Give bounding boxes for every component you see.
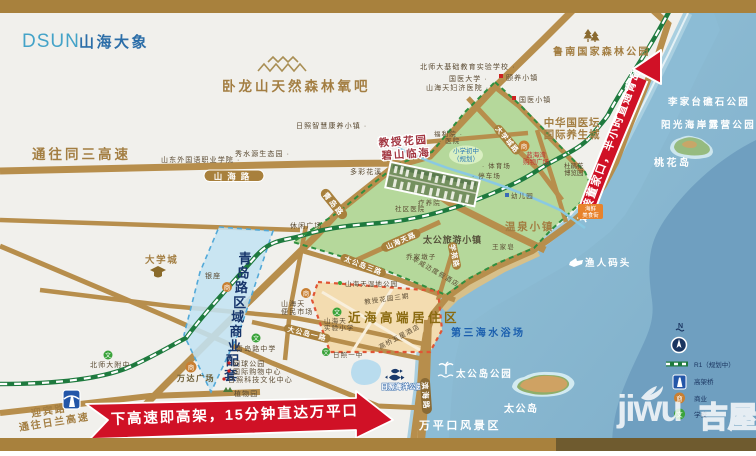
svg-text:第三海水浴场: 第三海水浴场 xyxy=(451,326,525,339)
svg-text:吉屋: 吉屋 xyxy=(699,401,756,434)
svg-text:万平口风景区: 万平口风景区 xyxy=(418,418,501,432)
svg-text:便民市场: 便民市场 xyxy=(281,307,313,316)
svg-text:近海高端居住区: 近海高端居住区 xyxy=(348,310,460,325)
svg-text:小学初中: 小学初中 xyxy=(453,146,479,155)
svg-text:温泉小镇: 温泉小镇 xyxy=(505,220,554,233)
svg-text:中华国医坛: 中华国医坛 xyxy=(544,116,601,129)
svg-text:文: 文 xyxy=(334,309,340,317)
svg-text:购物广场: 购物广场 xyxy=(523,157,550,166)
svg-text:幼儿园: 幼儿园 xyxy=(511,191,534,200)
svg-text:大学城: 大学城 xyxy=(145,254,178,266)
svg-text:太公岛公园: 太公岛公园 xyxy=(456,368,513,380)
svg-text:域: 域 xyxy=(231,309,244,324)
svg-text:银座: 银座 xyxy=(205,271,221,280)
svg-text:国医大学 ·: 国医大学 · xyxy=(449,74,488,83)
svg-text:卧龙山天然森林氧吧: 卧龙山天然森林氧吧 xyxy=(222,78,371,94)
svg-text:日照海洋公园: 日照海洋公园 xyxy=(381,382,423,391)
svg-text:美食街: 美食街 xyxy=(582,211,599,219)
svg-text:· 医院: · 医院 xyxy=(439,136,460,145)
svg-text:国医小镇: 国医小镇 xyxy=(519,95,551,104)
svg-text:岛: 岛 xyxy=(236,266,249,281)
svg-text:· 体育场: · 体育场 xyxy=(482,161,511,170)
svg-text:R1（规划中）: R1（规划中） xyxy=(694,360,735,369)
svg-text:商: 商 xyxy=(229,324,242,339)
svg-text:北师大基础教育实验学校 ·: 北师大基础教育实验学校 · xyxy=(420,62,516,71)
svg-text:杜鹃花: 杜鹃花 xyxy=(564,161,584,170)
svg-text:社区医院: 社区医院 xyxy=(395,204,425,213)
svg-text:商: 商 xyxy=(303,289,310,298)
svg-text:万达广场: 万达广场 xyxy=(176,373,215,383)
svg-text:通往同三高速: 通往同三高速 xyxy=(32,146,131,162)
svg-text:（规划）: （规划） xyxy=(453,154,479,163)
svg-text:山海天妇济医院 ·: 山海天妇济医院 · xyxy=(426,83,489,92)
svg-text:多彩花溪: 多彩花溪 xyxy=(350,167,382,176)
svg-text:· 停车场: · 停车场 xyxy=(472,171,501,180)
svg-text:路: 路 xyxy=(235,280,249,295)
svg-text:山海天湿地公园: 山海天湿地公园 xyxy=(345,279,398,288)
svg-text:秀水源生态园 ·: 秀水源生态园 · xyxy=(235,149,290,158)
svg-text:高架桥: 高架桥 xyxy=(694,377,714,386)
svg-text:阳光海岸露营公园: 阳光海岸露营公园 xyxy=(661,119,756,131)
svg-text:桃花岛: 桃花岛 xyxy=(654,156,692,169)
svg-text:蓝海湾: 蓝海湾 xyxy=(526,150,546,159)
svg-text:颐养小镇: 颐养小镇 xyxy=(506,73,538,82)
svg-text:海鲜: 海鲜 xyxy=(585,205,597,213)
svg-text:北师大附中: 北师大附中 xyxy=(90,360,131,369)
svg-text:青: 青 xyxy=(238,251,251,266)
svg-text:文: 文 xyxy=(323,349,329,357)
svg-text:山海天: 山海天 xyxy=(281,299,305,308)
svg-text:李家台礁石公园: 李家台礁石公园 xyxy=(667,96,750,108)
svg-text:商: 商 xyxy=(521,142,528,151)
svg-text:商: 商 xyxy=(224,283,231,292)
svg-text:青岛路中学: 青岛路中学 xyxy=(236,344,277,353)
svg-text:山海大象: 山海大象 xyxy=(79,33,149,51)
svg-text:文: 文 xyxy=(253,335,259,343)
svg-text:太公岛: 太公岛 xyxy=(503,402,539,415)
svg-text:鲁南国家森林公园: 鲁南国家森林公园 xyxy=(552,45,651,58)
svg-text:网球公园: 网球公园 xyxy=(233,359,265,368)
svg-text:日照一中: 日照一中 xyxy=(333,350,363,359)
svg-text:文: 文 xyxy=(105,352,111,360)
svg-text:渔人码头: 渔人码头 xyxy=(585,257,631,269)
svg-text:国际购物中心: 国际购物中心 xyxy=(233,367,282,376)
svg-text:山海路: 山海路 xyxy=(214,172,255,182)
svg-text:山东外国语职业学院 ·: 山东外国语职业学院 · xyxy=(161,155,240,164)
svg-text:福利院 ·: 福利院 · xyxy=(434,129,463,138)
svg-text:N: N xyxy=(678,323,683,330)
svg-text:jiwu: jiwu xyxy=(616,388,681,429)
svg-text:商: 商 xyxy=(188,363,195,372)
svg-text:博览园: 博览园 xyxy=(564,168,584,177)
svg-text:日照科技文化中心: 日照科技文化中心 xyxy=(228,375,293,384)
svg-text:DSUN: DSUN xyxy=(22,31,80,52)
svg-text:休闲广场: 休闲广场 xyxy=(290,221,322,230)
svg-text:国际养生城: 国际养生城 xyxy=(544,128,601,141)
svg-text:植物园: 植物园 xyxy=(234,389,258,398)
svg-text:王家皂: 王家皂 xyxy=(492,242,515,251)
svg-text:日照智慧康养小镇 ·: 日照智慧康养小镇 · xyxy=(296,121,367,130)
svg-text:区: 区 xyxy=(233,295,246,310)
svg-text:山海天: 山海天 xyxy=(324,316,347,325)
svg-text:滨海路: 滨海路 xyxy=(420,381,432,410)
